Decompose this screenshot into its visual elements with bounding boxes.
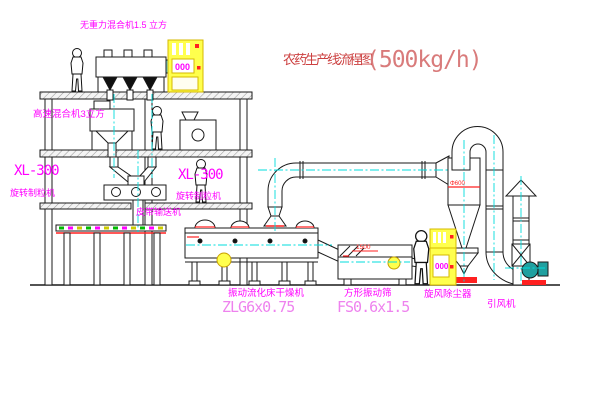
label-belt-conveyor: 皮带输送机 (136, 206, 181, 217)
dryer-vibration-motor (217, 253, 231, 267)
label-high-speed-mixer: 高速混合机3立方 (33, 108, 105, 120)
cabinet2-indicator-light (450, 235, 454, 239)
cabinet2-display: 000 (435, 262, 449, 271)
feeder-machine (180, 112, 216, 150)
cad-drawing-canvas: 000 (0, 0, 600, 403)
exhaust-duct (264, 156, 449, 226)
process-flow-diagram: 000 (0, 0, 600, 403)
induced-draft-fan (522, 262, 548, 285)
label-granulator-left-model: XL-300 (14, 163, 59, 179)
label-granulator-right-model: XL-300 (178, 167, 223, 183)
cabinet1-indicator-light (195, 44, 199, 48)
person-figure-4 (414, 231, 429, 284)
cabinet1-button (197, 66, 201, 70)
control-cabinet-2: 000 (430, 229, 456, 285)
cyclone-inlet-transition (436, 156, 449, 185)
label-dryer-model: ZLG6x0.75 (222, 298, 294, 316)
sieve-vibration-motor (388, 257, 400, 269)
person-figure-1 (71, 49, 83, 92)
cabinet1-display: 000 (175, 62, 190, 72)
floor-slab-top (40, 92, 252, 99)
fan-base (522, 280, 546, 285)
fluid-bed-dryer (185, 220, 348, 285)
label-fan: 引风机 (487, 298, 516, 310)
person-figure-2 (151, 107, 163, 150)
floor-slab-lower-left (40, 203, 131, 209)
label-granulator-left-name: 旋转制粒机 (10, 187, 55, 198)
control-cabinet-1: 000 (168, 40, 203, 92)
label-cyclone: 旋风除尘器 (424, 288, 472, 300)
fan-scroll (522, 262, 538, 278)
cabinet2-button (450, 265, 454, 269)
diagram-capacity: (500kg/h) (366, 47, 482, 73)
label-sieve-model: FS0.6x1.5 (337, 298, 409, 316)
dimension-cyclone-diameter: Φ600 (450, 181, 465, 187)
label-zero-gravity-mixer: 无重力混合机1.5 立方 (80, 19, 167, 30)
dimension-sieve-length: 1500 (356, 244, 371, 251)
fan-motor (538, 262, 548, 276)
cyclone-discharge-base (453, 277, 477, 283)
diagram-title: 农药生产线流程图 (283, 52, 372, 67)
label-granulator-right-name: 旋转制粒机 (176, 190, 221, 201)
square-sieve (338, 245, 424, 285)
floor-slab-middle (40, 150, 252, 157)
